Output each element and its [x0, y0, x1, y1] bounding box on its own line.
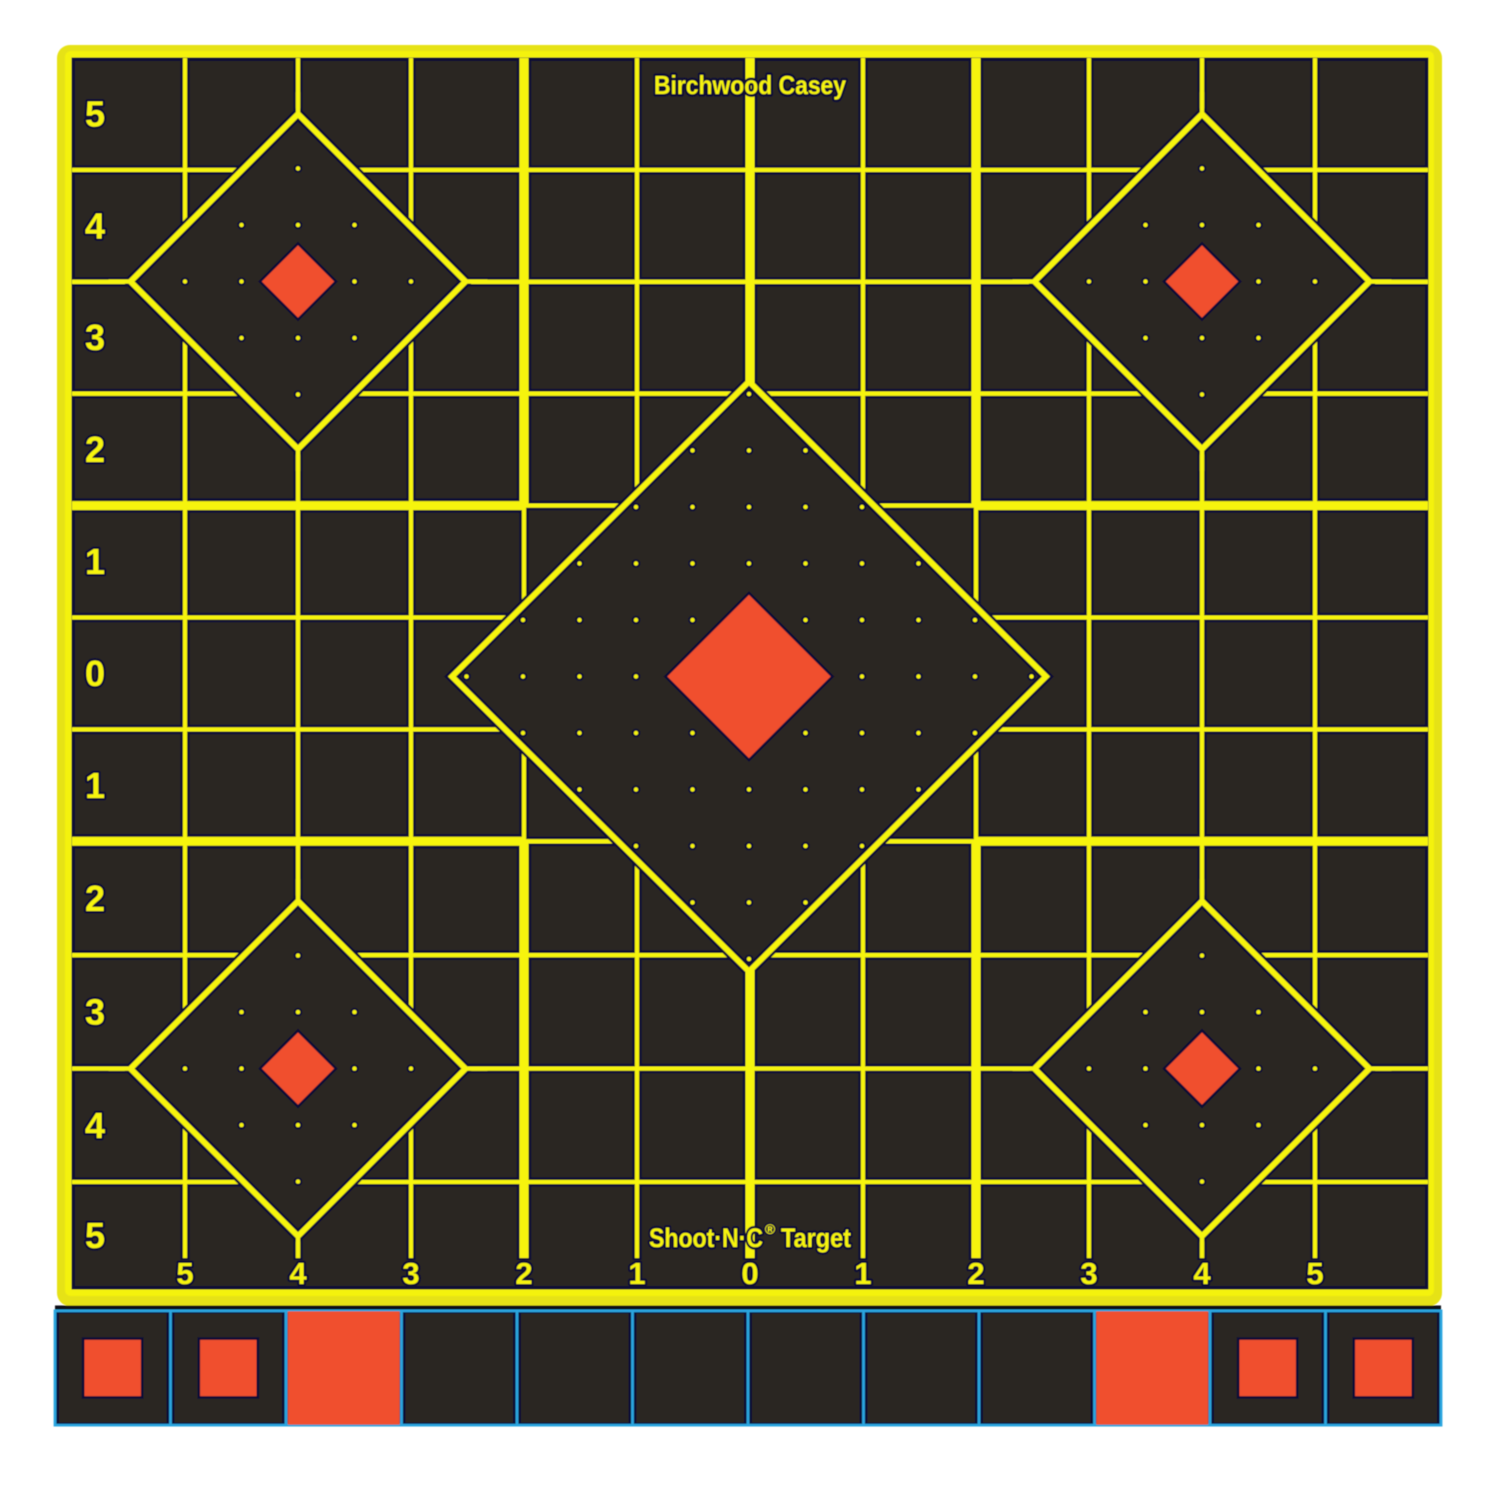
svg-text:Target: Target — [781, 1223, 851, 1253]
svg-text:3: 3 — [1080, 1256, 1097, 1291]
svg-text:0: 0 — [85, 653, 105, 694]
svg-text:4: 4 — [85, 1105, 105, 1146]
svg-text:2: 2 — [967, 1256, 984, 1291]
svg-text:4: 4 — [85, 205, 105, 246]
svg-text:1: 1 — [85, 765, 105, 806]
svg-text:5: 5 — [85, 94, 105, 135]
svg-text:2: 2 — [515, 1256, 532, 1291]
svg-text:1: 1 — [628, 1256, 645, 1291]
svg-text:5: 5 — [176, 1256, 193, 1291]
svg-text:Birchwood Casey: Birchwood Casey — [654, 70, 846, 100]
svg-text:3: 3 — [85, 991, 105, 1032]
svg-text:3: 3 — [402, 1256, 419, 1291]
svg-text:®: ® — [765, 1221, 776, 1237]
svg-text:1: 1 — [854, 1256, 871, 1291]
svg-text:5: 5 — [1306, 1256, 1323, 1291]
svg-text:5: 5 — [85, 1215, 105, 1256]
svg-text:Shoot·N·C: Shoot·N·C — [649, 1223, 763, 1253]
svg-text:1: 1 — [85, 541, 105, 582]
svg-text:0: 0 — [741, 1256, 758, 1291]
svg-text:2: 2 — [85, 429, 105, 470]
svg-text:4: 4 — [289, 1256, 307, 1291]
svg-text:2: 2 — [85, 878, 105, 919]
svg-text:3: 3 — [85, 317, 105, 358]
svg-text:4: 4 — [1193, 1256, 1211, 1291]
